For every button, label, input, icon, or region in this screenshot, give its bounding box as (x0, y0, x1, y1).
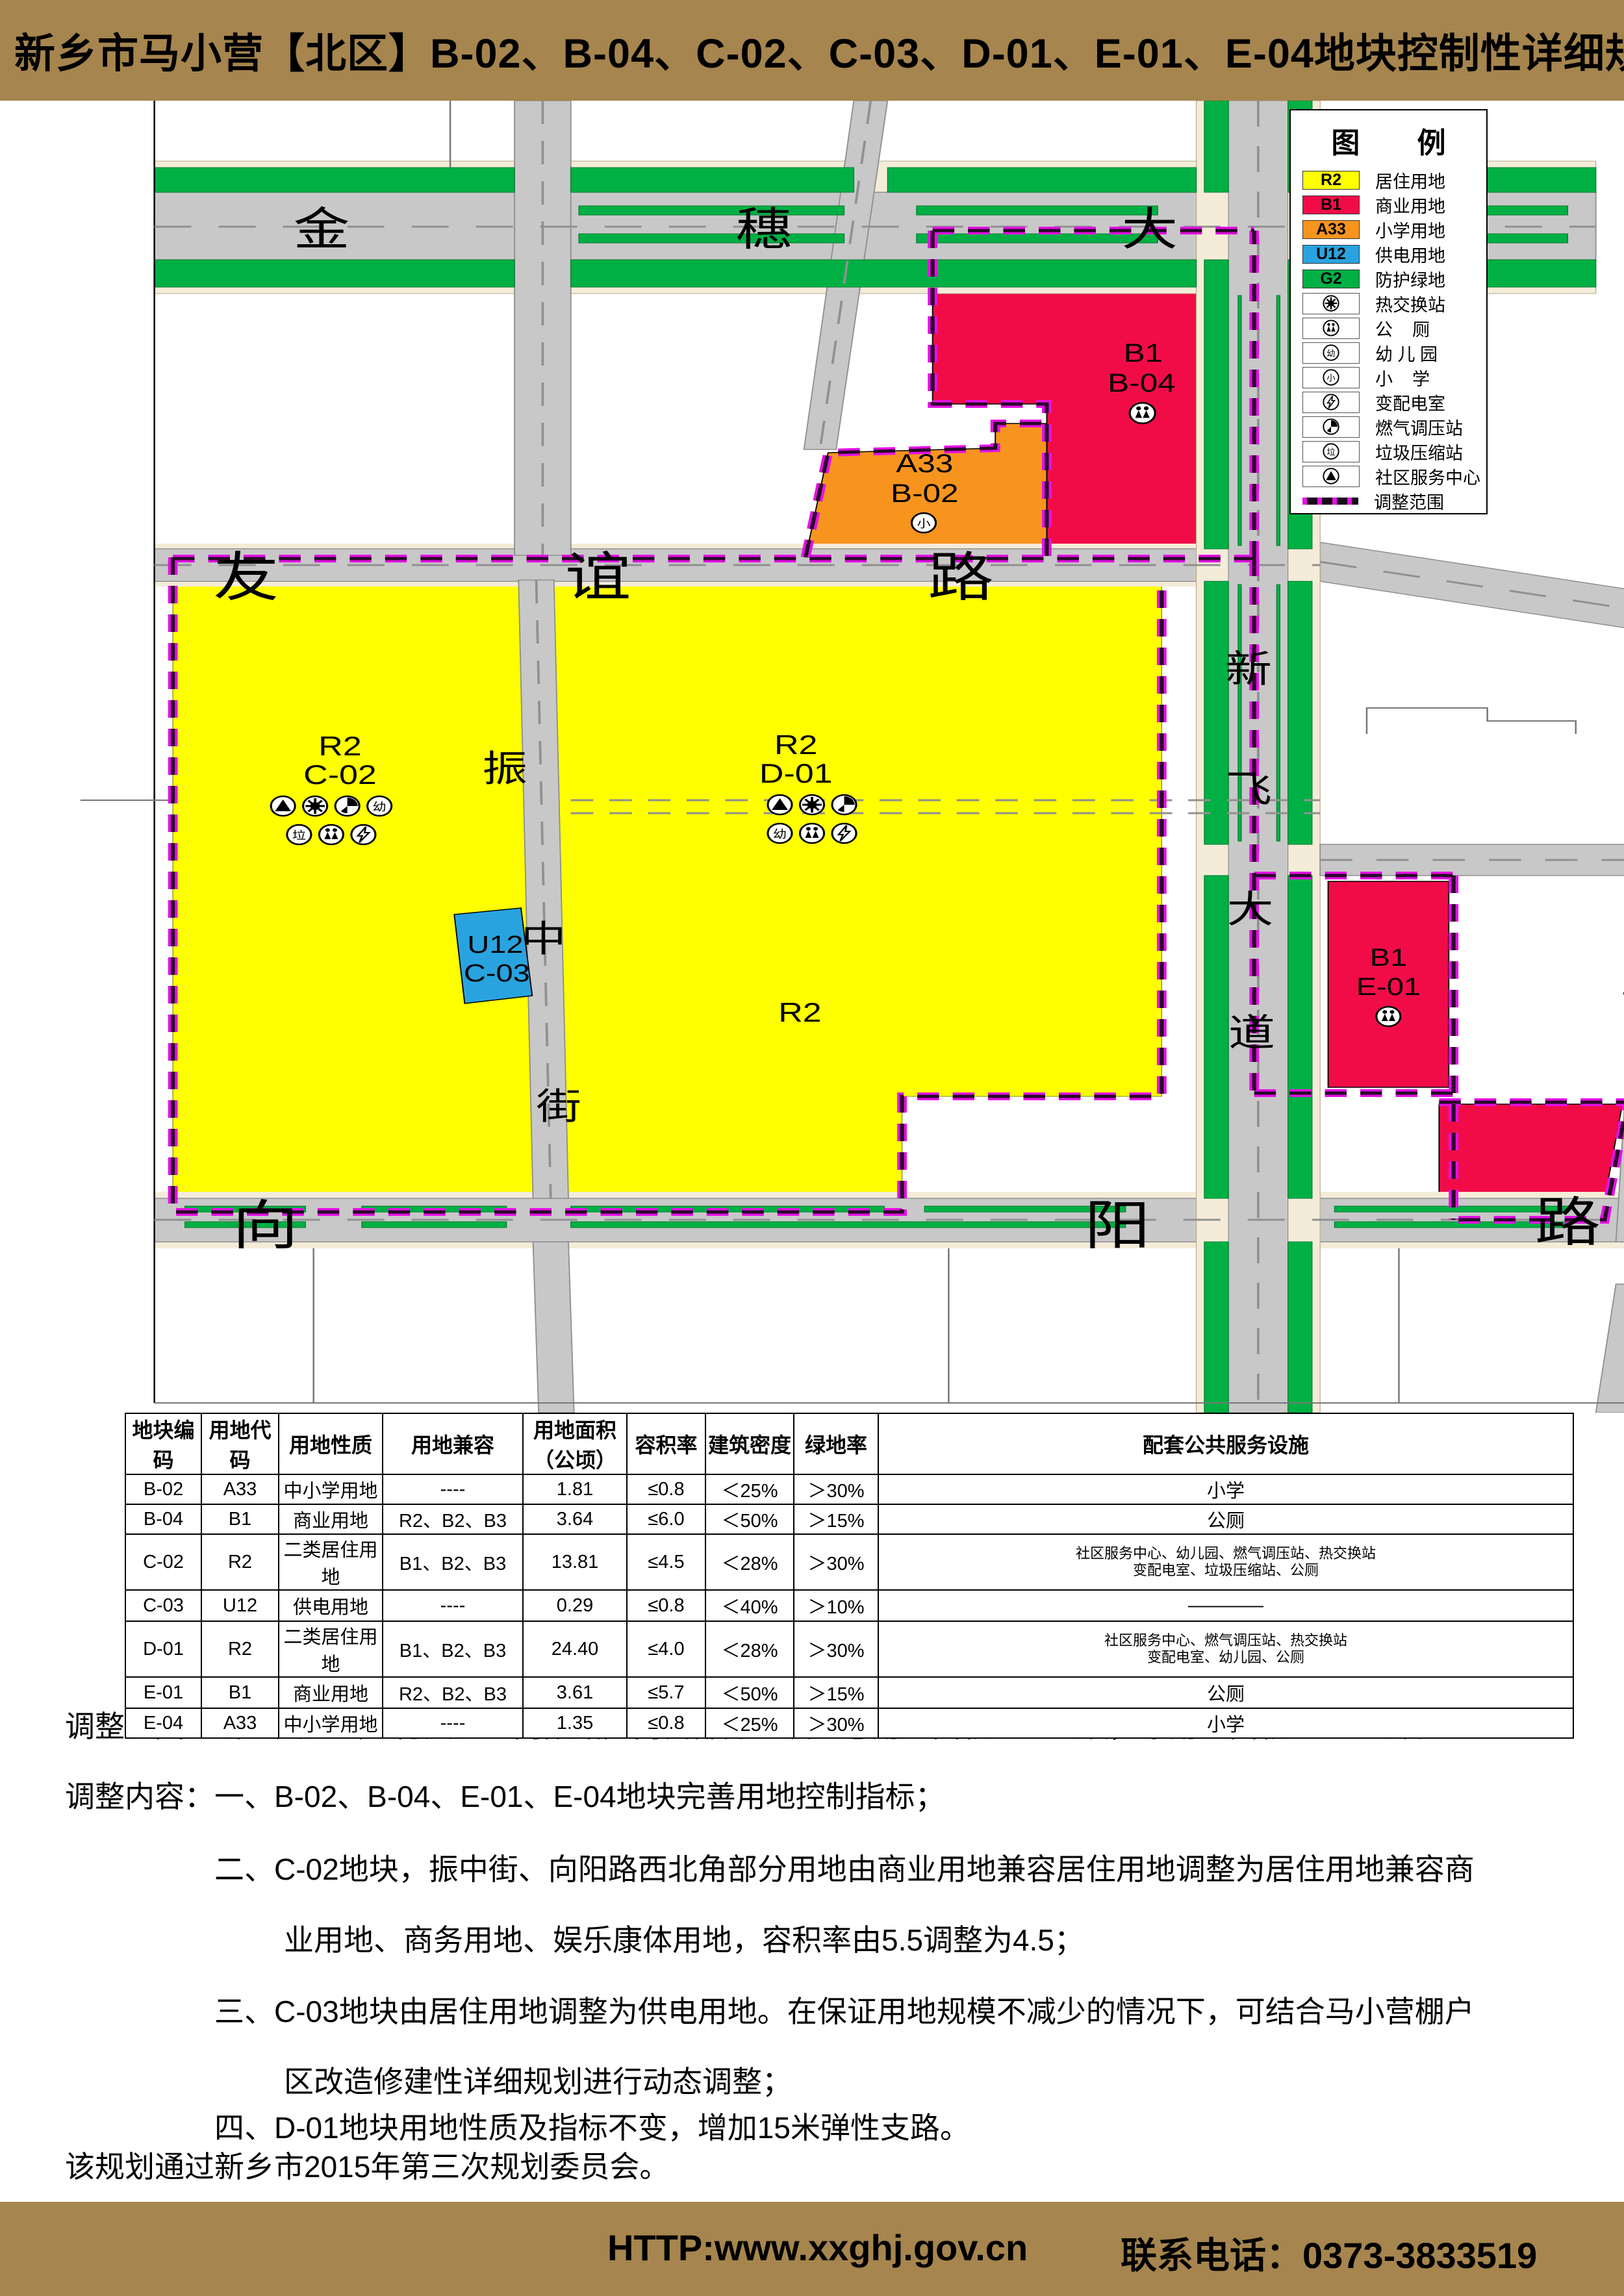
road-label: 新 (1225, 648, 1272, 690)
color-chip-b1: B1 (1302, 196, 1360, 214)
road-label: 穗 (735, 204, 792, 255)
legend-item-school: 小 学 (1291, 365, 1486, 390)
public-toilet-icon (800, 824, 824, 843)
cell-services: 社区服务中心、燃气调压站、热交换站变配电室、幼儿园、公厕 (878, 1621, 1573, 1677)
garbage-compress-icon (1322, 442, 1340, 460)
green-belt (1204, 260, 1228, 549)
cell-parcel-id: E-04 (125, 1708, 201, 1738)
parcel-label: C-03 (464, 959, 530, 987)
col-header: 用地兼容 (383, 1413, 523, 1474)
services-line: 社区服务中心、燃气调压站、热交换站 (879, 1632, 1573, 1649)
road-label: 中 (521, 919, 566, 959)
green-belt (155, 260, 514, 287)
legend-item-u12: U12供电用地 (1291, 242, 1486, 266)
kindergarten-icon (368, 796, 392, 816)
gas-regulator-icon (832, 795, 856, 814)
cell-services: 公厕 (878, 1677, 1573, 1708)
parcel-indicator-table: 地块编码 用地代码 用地性质 用地兼容 用地面积（公顷） 容积率 建筑密度 绿地… (125, 1413, 1574, 1739)
legend-label: 燃气调压站 (1375, 414, 1463, 440)
services-line: 变配电室、垃圾压缩站、公厕 (879, 1562, 1573, 1579)
road-label: 振 (483, 749, 527, 789)
legend-label: 小 学 (1375, 365, 1430, 390)
table-header-row: 地块编码 用地代码 用地性质 用地兼容 用地面积（公顷） 容积率 建筑密度 绿地… (125, 1413, 1573, 1474)
road-label: 金 (294, 204, 350, 255)
legend-label: 调整范围 (1374, 488, 1444, 514)
col-header: 配套公共服务设施 (878, 1413, 1573, 1474)
cell-compat: B1、B2、B3 (383, 1621, 523, 1677)
green-line (1276, 296, 1280, 546)
cell-nature: 二类居住用地 (279, 1621, 383, 1677)
cell-compat: B1、B2、B3 (383, 1534, 523, 1590)
cell-parcel-id: C-03 (125, 1590, 201, 1621)
cell-code: B1 (201, 1677, 279, 1708)
cell-code: A33 (201, 1474, 279, 1504)
legend-label: 社区服务中心 (1375, 464, 1480, 489)
services-line: 社区服务中心、幼儿园、燃气调压站、热交换站 (879, 1545, 1573, 1562)
community-center-icon (768, 795, 792, 814)
parcel-label: R2 (774, 730, 817, 761)
legend-label: 公 厕 (1375, 316, 1430, 341)
road-label: 路 (928, 547, 993, 607)
cell-code: U12 (201, 1590, 279, 1621)
public-toilet-icon (1322, 319, 1340, 337)
cell-green: ＞30% (794, 1474, 878, 1504)
parcel-label: B-04 (1108, 368, 1176, 397)
cell-green: ＞15% (794, 1504, 878, 1534)
cell-parcel-id: D-01 (125, 1621, 201, 1677)
road-minor-left (514, 101, 571, 555)
parcel-label: B1 (1370, 944, 1408, 972)
cell-green: ＞30% (794, 1534, 878, 1590)
note-content-4: 四、D-01地块用地性质及指标不变，增加15米弹性支路。 (214, 2104, 970, 2147)
legend-item-power: 变配电室 (1291, 390, 1486, 414)
parcel-label: U12 (467, 931, 523, 959)
note-content-3b: 区改造修建性详细规划进行动态调整； (284, 2058, 792, 2101)
col-header-line1: 用地面积 (524, 1414, 626, 1444)
road-zhenzhong-south (533, 1242, 574, 1413)
public-toilet-icon (1377, 1007, 1401, 1026)
cell-area: 0.29 (523, 1590, 627, 1621)
power-room-icon (351, 825, 375, 844)
cell-code: A33 (201, 1708, 279, 1738)
cell-density: ＜25% (705, 1708, 794, 1738)
legend-item-gas: 燃气调压站 (1291, 414, 1486, 439)
page-title: 新乡市马小营【北区】B-02、B-04、C-02、C-03、D-01、E-01、… (14, 21, 1624, 80)
community-center-icon (1322, 467, 1340, 485)
legend-item-r2: R2居住用地 (1291, 168, 1486, 192)
color-chip-u12: U12 (1302, 245, 1360, 264)
cell-parcel-id: B-02 (125, 1474, 201, 1504)
cell-green: ＞15% (794, 1677, 878, 1708)
legend-item-heat: 热交换站 (1291, 291, 1486, 316)
cell-compat: R2、B2、B3 (383, 1677, 523, 1708)
legend-item-g2: G2防护绿地 (1291, 266, 1486, 291)
green-line (1238, 296, 1241, 546)
road-label: 街 (536, 1087, 581, 1127)
cell-services: 小学 (878, 1474, 1573, 1504)
table-row: D-01R2二类居住用地B1、B2、B324.40≤4.0＜28%＞30%社区服… (125, 1621, 1573, 1677)
cell-nature: 中小学用地 (279, 1708, 383, 1738)
cell-parcel-id: E-01 (125, 1677, 201, 1708)
table-row: B-02A33中小学用地----1.81≤0.8＜25%＞30%小学 (125, 1474, 1573, 1504)
parcel-label: D-01 (759, 759, 833, 789)
legend-label: 商业用地 (1375, 192, 1445, 218)
green-belt (1204, 876, 1228, 1198)
cell-code: B1 (201, 1504, 279, 1534)
legend-title: 图 例 (1291, 120, 1486, 161)
legend-item-b1: B1商业用地 (1291, 192, 1486, 217)
parcel-label: R2 (778, 998, 821, 1028)
legend-item-a33: A33小学用地 (1291, 217, 1486, 242)
parcel-label: R2 (318, 731, 361, 762)
road-label: 飞 (1225, 768, 1272, 811)
road-east-horizontal (1320, 844, 1624, 876)
public-toilet-icon (1130, 403, 1155, 423)
legend-label: 供电用地 (1375, 242, 1445, 267)
cell-area: 3.61 (523, 1677, 627, 1708)
legend-item-adjust-range: 调整范围 (1291, 488, 1486, 513)
adjust-range-dash (1302, 498, 1358, 505)
parcel-label: B1 (1124, 338, 1163, 368)
legend: 图 例 R2居住用地 B1商业用地 A33小学用地 U12供电用地 G2防护绿地… (1289, 109, 1488, 514)
cell-density: ＜40% (705, 1590, 794, 1621)
cell-area: 3.64 (523, 1504, 627, 1534)
garbage-compress-icon (287, 825, 311, 844)
title-bar: 新乡市马小营【北区】B-02、B-04、C-02、C-03、D-01、E-01、… (0, 0, 1624, 101)
green-belt (1288, 581, 1312, 844)
cell-nature: 供电用地 (279, 1590, 383, 1621)
cell-services: 公厕 (878, 1504, 1573, 1534)
green-line (1276, 585, 1280, 841)
cell-compat: ---- (383, 1474, 523, 1504)
col-header: 建筑密度 (705, 1413, 794, 1474)
note-content-2b: 业用地、商务用地、娱乐康体用地，容积率由5.5调整为4.5； (284, 1917, 1084, 1960)
color-chip-a33: A33 (1302, 220, 1360, 239)
road-label: 大 (1121, 204, 1178, 255)
table-row: E-01B1商业用地R2、B2、B33.61≤5.7＜50%＞15%公厕 (125, 1677, 1573, 1708)
footer-phone: 联系电话：0373-3833519 (1121, 2227, 1537, 2279)
col-header-line2: （公顷） (524, 1444, 626, 1474)
heat-exchange-icon (1322, 294, 1340, 312)
road-label: 路 (1535, 1192, 1601, 1252)
parcel-label: B-02 (891, 479, 959, 508)
cell-nature: 商业用地 (279, 1504, 383, 1534)
green-belt (1288, 876, 1312, 1198)
cell-services: 小学 (878, 1708, 1573, 1738)
color-chip-r2: R2 (1302, 171, 1360, 190)
heat-exchange-icon (800, 795, 824, 814)
cell-area: 24.40 (523, 1621, 627, 1677)
legend-label: 变配电室 (1375, 390, 1445, 415)
col-header: 用地性质 (279, 1413, 383, 1474)
cell-far: ≤0.8 (627, 1474, 705, 1504)
green-belt (1204, 101, 1228, 192)
table-row: B-04B1商业用地R2、B2、B33.64≤6.0＜50%＞15%公厕 (125, 1504, 1573, 1534)
legend-item-toilet: 公 厕 (1291, 316, 1486, 340)
cell-services: 社区服务中心、幼儿园、燃气调压站、热交换站变配电室、垃圾压缩站、公厕 (878, 1534, 1573, 1590)
col-header: 绿地率 (794, 1413, 878, 1474)
parcel-label: A33 (896, 449, 953, 478)
green-belt (887, 168, 1196, 192)
services-line: 变配电室、幼儿园、公厕 (879, 1649, 1573, 1666)
green-median (579, 234, 844, 243)
road-label: 向 (233, 1195, 298, 1255)
cell-far: ≤4.0 (627, 1621, 705, 1677)
gas-regulator-icon (335, 796, 359, 816)
green-median (571, 1222, 1126, 1228)
legend-item-garbage: 垃圾压缩站 (1291, 439, 1486, 464)
primary-school-icon (1322, 368, 1340, 386)
legend-label: 幼 儿 园 (1375, 340, 1438, 366)
cell-density: ＜25% (705, 1474, 794, 1504)
power-room-icon (1322, 393, 1340, 411)
color-chip-g2: G2 (1302, 270, 1360, 288)
green-belt (1204, 1242, 1228, 1413)
note-content-1: 调整内容：一、B-02、B-04、E-01、E-04地块完善用地控制指标； (65, 1773, 945, 1816)
cell-green: ＞10% (794, 1590, 878, 1621)
road-label: 大 (1227, 889, 1274, 931)
cell-area: 1.35 (523, 1708, 627, 1738)
legend-label: 防护绿地 (1375, 266, 1445, 292)
cell-nature: 中小学用地 (279, 1474, 383, 1504)
cell-density: ＜28% (705, 1621, 794, 1677)
road-youyi-east-diagonal (1320, 542, 1624, 687)
road-label: 阳 (1085, 1195, 1150, 1255)
cell-far: ≤0.8 (627, 1708, 705, 1738)
cell-density: ＜50% (705, 1504, 794, 1534)
cell-far: ≤4.5 (627, 1534, 705, 1590)
cell-far: ≤5.7 (627, 1677, 705, 1708)
cell-area: 13.81 (523, 1534, 627, 1590)
legend-label: 小学用地 (1375, 217, 1445, 242)
col-header: 容积率 (627, 1413, 705, 1474)
road-label: 谊 (565, 547, 631, 607)
parcel-label: E-01 (1356, 973, 1421, 1001)
table-row: C-03U12供电用地----0.29≤0.8＜40%＞10%———— (125, 1590, 1573, 1621)
cell-parcel-id: C-02 (125, 1534, 201, 1590)
green-median (362, 1222, 507, 1228)
legend-label: 热交换站 (1375, 291, 1445, 316)
green-belt (155, 168, 514, 192)
road-label: 友 (213, 547, 279, 607)
footer-website: HTTP:www.xxghj.gov.cn (607, 2227, 1028, 2269)
green-median (579, 206, 844, 215)
parcel-label: C-02 (303, 760, 377, 790)
building-outline (1367, 708, 1576, 734)
primary-school-icon (911, 513, 935, 533)
legend-label: 垃圾压缩站 (1375, 439, 1463, 464)
cell-compat: ---- (383, 1590, 523, 1621)
heat-exchange-icon (303, 796, 327, 816)
note-content-2a: 二、C-02地块，振中街、向阳路西北角部分用地由商业用地兼容居住用地调整为居住用… (214, 1846, 1475, 1889)
parcel-c02-d01-yellow (173, 580, 1161, 1198)
cell-far: ≤0.8 (627, 1590, 705, 1621)
cell-code: R2 (201, 1534, 279, 1590)
table-row: C-02R2二类居住用地B1、B2、B313.81≤4.5＜28%＞30%社区服… (125, 1534, 1573, 1590)
green-belt (571, 168, 854, 192)
public-toilet-icon (319, 825, 343, 844)
power-room-icon (832, 824, 856, 843)
cell-code: R2 (201, 1621, 279, 1677)
note-approval: 该规划通过新乡市2015年第三次规划委员会。 (65, 2143, 669, 2186)
green-belt (571, 260, 1197, 287)
cell-green: ＞30% (794, 1708, 878, 1738)
legend-item-kindergarten: 幼 儿 园 (1291, 340, 1486, 365)
kindergarten-icon (768, 824, 792, 843)
col-header: 用地面积（公顷） (523, 1413, 627, 1474)
cell-compat: R2、B2、B3 (383, 1504, 523, 1534)
cell-parcel-id: B-04 (125, 1504, 201, 1534)
gas-regulator-icon (1322, 418, 1340, 436)
legend-item-community: 社区服务中心 (1291, 464, 1486, 488)
cell-services: ———— (878, 1590, 1573, 1621)
cell-compat: ---- (383, 1708, 523, 1738)
cell-nature: 商业用地 (279, 1677, 383, 1708)
road-label: 路 (1621, 965, 1624, 1001)
cell-far: ≤6.0 (627, 1504, 705, 1534)
planning-map: 幼 小 垃 (0, 101, 1624, 1413)
community-center-icon (271, 796, 295, 816)
kindergarten-icon (1322, 344, 1340, 362)
legend-label: 居住用地 (1375, 168, 1445, 193)
green-belt (1288, 1242, 1312, 1413)
cell-density: ＜28% (705, 1534, 794, 1590)
road-label: 道 (1228, 1012, 1275, 1054)
table-row: E-04A33中小学用地----1.35≤0.8＜25%＞30%小学 (125, 1708, 1573, 1738)
footer-bar: HTTP:www.xxghj.gov.cn 联系电话：0373-3833519 (0, 2202, 1624, 2296)
cell-nature: 二类居住用地 (279, 1534, 383, 1590)
road-guihua-south (1596, 1284, 1624, 1413)
col-header: 地块编码 (125, 1413, 201, 1474)
cell-green: ＞30% (794, 1621, 878, 1677)
col-header: 用地代码 (201, 1413, 279, 1474)
cell-area: 1.81 (523, 1474, 627, 1504)
note-content-3a: 三、C-03地块由居住用地调整为供电用地。在保证用地规模不减少的情况下，可结合马… (214, 1988, 1475, 2031)
cell-density: ＜50% (705, 1677, 794, 1708)
